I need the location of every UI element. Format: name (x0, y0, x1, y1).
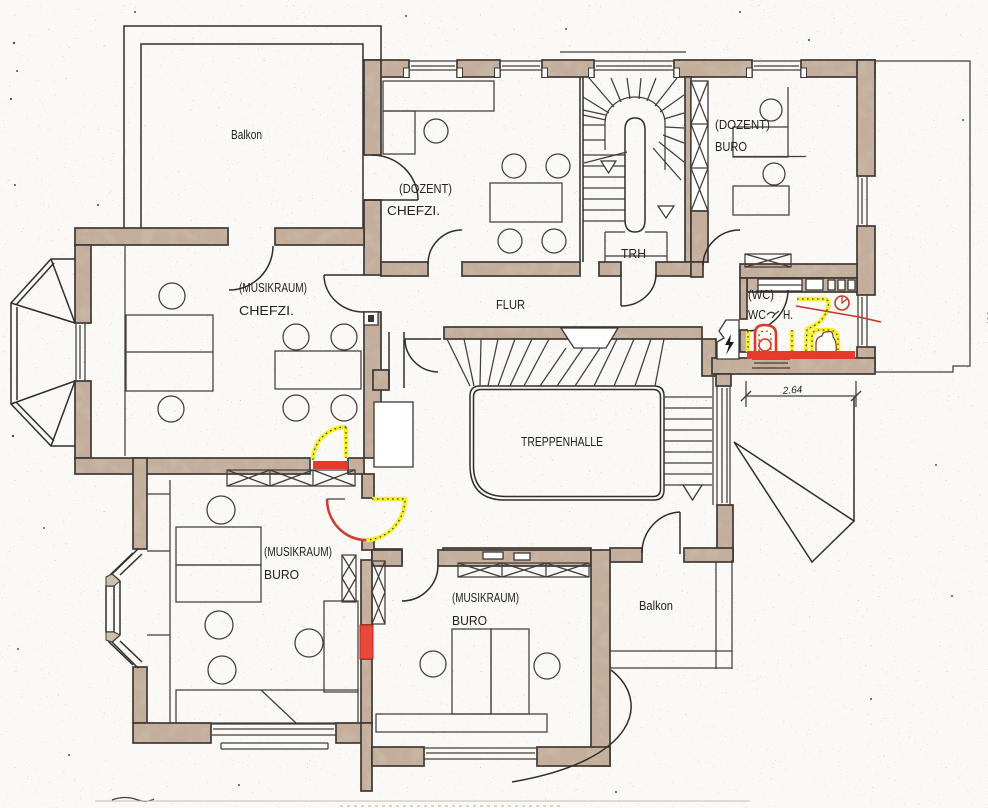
svg-text:FLUR: FLUR (496, 297, 525, 312)
svg-text:BURO: BURO (715, 139, 747, 154)
svg-text:BURO: BURO (452, 613, 487, 628)
svg-text:(DOZENT): (DOZENT) (715, 117, 770, 132)
svg-text:2.64: 2.64 (781, 385, 803, 397)
svg-text:TRH: TRH (621, 246, 646, 261)
svg-text:(MUSIKRAUM): (MUSIKRAUM) (452, 590, 519, 605)
svg-text:(MUSIKRAUM): (MUSIKRAUM) (264, 544, 332, 559)
svg-text:Balkon: Balkon (639, 598, 673, 613)
svg-text:H.: H. (783, 307, 793, 322)
svg-text:CHEFZI.: CHEFZI. (387, 203, 440, 218)
svg-text:TREPPENHALLE: TREPPENHALLE (521, 434, 603, 449)
svg-text:WC: WC (748, 307, 766, 322)
svg-text:(MUSIKRAUM): (MUSIKRAUM) (239, 280, 307, 295)
svg-text:BURO: BURO (264, 567, 299, 582)
svg-text:CHEFZI.: CHEFZI. (239, 303, 294, 318)
svg-text:(WC): (WC) (748, 287, 774, 302)
svg-text:(DOZENT): (DOZENT) (399, 181, 452, 196)
svg-text:Balkon: Balkon (231, 127, 262, 142)
